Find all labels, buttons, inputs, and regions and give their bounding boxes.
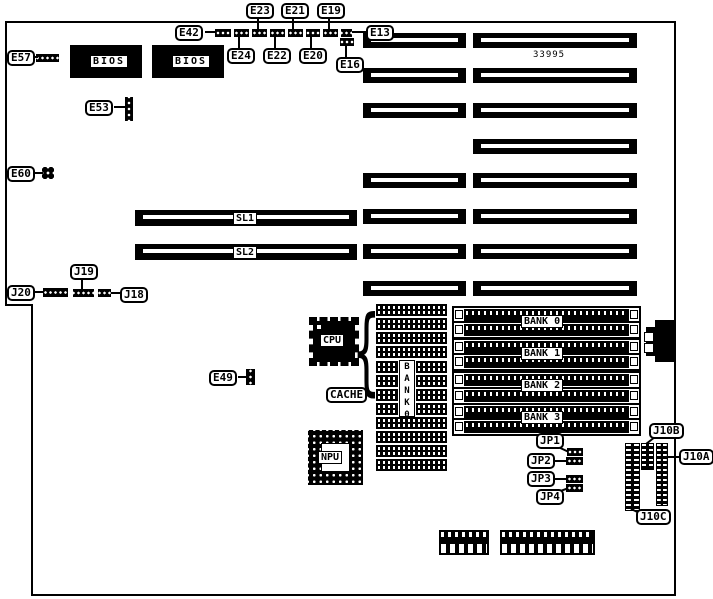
header-j10a: [656, 443, 668, 506]
npu-label: NPU: [318, 451, 342, 464]
jumper-block: [323, 29, 338, 37]
jumper-block-e16: [340, 38, 354, 46]
dip-chip: [416, 389, 447, 401]
jumper-jp4: [566, 484, 583, 492]
dip-chip: [376, 459, 447, 471]
header-j10c: [625, 443, 640, 511]
simm-clip: [455, 422, 463, 431]
expansion-slot: [363, 209, 466, 224]
jumper-e60: [42, 167, 54, 179]
dip-chip: [376, 346, 447, 358]
callout-e23: E23: [246, 3, 274, 19]
dip-chip: [376, 318, 447, 330]
callout-e24: E24: [227, 48, 255, 64]
edge-connector: [500, 530, 595, 555]
leader-jp2: [555, 460, 566, 462]
keyboard-connector-notch: [644, 332, 654, 342]
jumper-e49: [246, 369, 255, 385]
callout-e21: E21: [281, 3, 309, 19]
bank1-label: BANK 1: [521, 347, 563, 360]
leader-e16: [345, 46, 347, 57]
dip-chip: [416, 361, 447, 373]
bank0-column-label: BANK0: [399, 360, 415, 417]
callout-e13: E13: [366, 25, 394, 41]
expansion-slot: [363, 244, 466, 259]
simm-clip: [630, 391, 638, 400]
callout-j20: J20: [7, 285, 35, 301]
expansion-slot: [363, 68, 466, 83]
jumper-e57: [36, 54, 59, 62]
cpu-label: CPU: [320, 334, 344, 347]
leader-e53: [114, 106, 126, 108]
callout-e22: E22: [263, 48, 291, 64]
simm-clip: [630, 375, 638, 384]
leader-e24: [238, 37, 240, 48]
bank2-label: BANK 2: [521, 379, 563, 392]
part-number: 33995: [533, 50, 565, 60]
simm-clip: [455, 407, 463, 416]
simm-clip: [455, 310, 463, 319]
jumper-block: [234, 29, 249, 37]
slot-sl1-label: SL1: [233, 212, 257, 225]
keyboard-connector: [655, 320, 675, 362]
dip-chip: [376, 332, 447, 344]
jumper-jp1: [567, 448, 583, 456]
jumper-block-j18: [98, 289, 111, 297]
callout-jp3: JP3: [527, 471, 555, 487]
simm-clip: [455, 342, 463, 351]
expansion-slot: [473, 33, 637, 48]
leader-e20: [310, 37, 312, 48]
expansion-slot: [473, 139, 637, 154]
jumper-block: [270, 29, 285, 37]
callout-e57: E57: [7, 50, 35, 66]
bank3-label: BANK 3: [521, 411, 563, 424]
callout-j10c: J10C: [636, 509, 671, 525]
callout-e19: E19: [317, 3, 345, 19]
callout-jp2: JP2: [527, 453, 555, 469]
jumper-block: [252, 29, 267, 37]
simm-clip: [630, 407, 638, 416]
callout-jp1: JP1: [536, 433, 564, 449]
expansion-slot: [473, 173, 637, 188]
expansion-slot: [473, 68, 637, 83]
expansion-slot: [473, 281, 637, 296]
callout-j18: J18: [120, 287, 148, 303]
cpu-pin1-marker: [317, 325, 321, 329]
expansion-slot: [363, 103, 466, 118]
jumper-block: [306, 29, 320, 37]
callout-e42: E42: [175, 25, 203, 41]
expansion-slot: [363, 281, 466, 296]
jumper-e53: [125, 97, 133, 121]
callout-e49: E49: [209, 370, 237, 386]
simm-clip: [630, 342, 638, 351]
leader-e49: [238, 376, 247, 378]
expansion-slot: [473, 209, 637, 224]
dip-chip: [376, 431, 447, 443]
edge-connector: [439, 530, 489, 555]
callout-jp4: JP4: [536, 489, 564, 505]
bios-chip-2-label: BIOS: [172, 55, 210, 68]
simm-clip: [455, 325, 463, 334]
slot-sl2-label: SL2: [233, 246, 257, 259]
dip-chip: [376, 304, 447, 316]
callout-e16: E16: [336, 57, 364, 73]
leader-j10a: [666, 456, 680, 458]
jumper-block: [341, 29, 352, 37]
jumper-block-j20: [43, 288, 68, 297]
simm-clip: [630, 325, 638, 334]
leader-e22: [274, 37, 276, 48]
simm-clip: [630, 422, 638, 431]
header-j10b: [641, 443, 654, 470]
callout-e53: E53: [85, 100, 113, 116]
motherboard-diagram: E23 E21 E19 E42 E13 E24 E22 E20 E16 BIOS…: [0, 0, 713, 599]
simm-clip: [455, 375, 463, 384]
callout-e20: E20: [299, 48, 327, 64]
expansion-slot: [473, 103, 637, 118]
jumper-jp2: [566, 457, 583, 465]
jumper-block: [288, 29, 303, 37]
callout-j10b: J10B: [649, 423, 684, 439]
leader-e42: [205, 31, 215, 33]
simm-clip: [630, 310, 638, 319]
jumper-block-j19: [73, 289, 94, 297]
callout-j19: J19: [70, 264, 98, 280]
bios-chip-1-label: BIOS: [90, 55, 128, 68]
keyboard-connector-notch: [644, 343, 654, 353]
dip-chip: [376, 445, 447, 457]
leader-e13: [352, 31, 367, 33]
leader-jp3: [555, 478, 566, 480]
expansion-slot: [473, 244, 637, 259]
callout-e60: E60: [7, 166, 35, 182]
dip-chip: [416, 403, 447, 415]
jumper-jp3: [566, 475, 583, 483]
callout-cache: CACHE: [326, 387, 367, 403]
expansion-slot: [363, 173, 466, 188]
simm-clip: [455, 391, 463, 400]
jumper-block: [215, 29, 231, 37]
bank0-label: BANK 0: [521, 315, 563, 328]
callout-j10a: J10A: [679, 449, 713, 465]
dip-chip: [416, 375, 447, 387]
simm-clip: [630, 357, 638, 366]
simm-clip: [455, 357, 463, 366]
